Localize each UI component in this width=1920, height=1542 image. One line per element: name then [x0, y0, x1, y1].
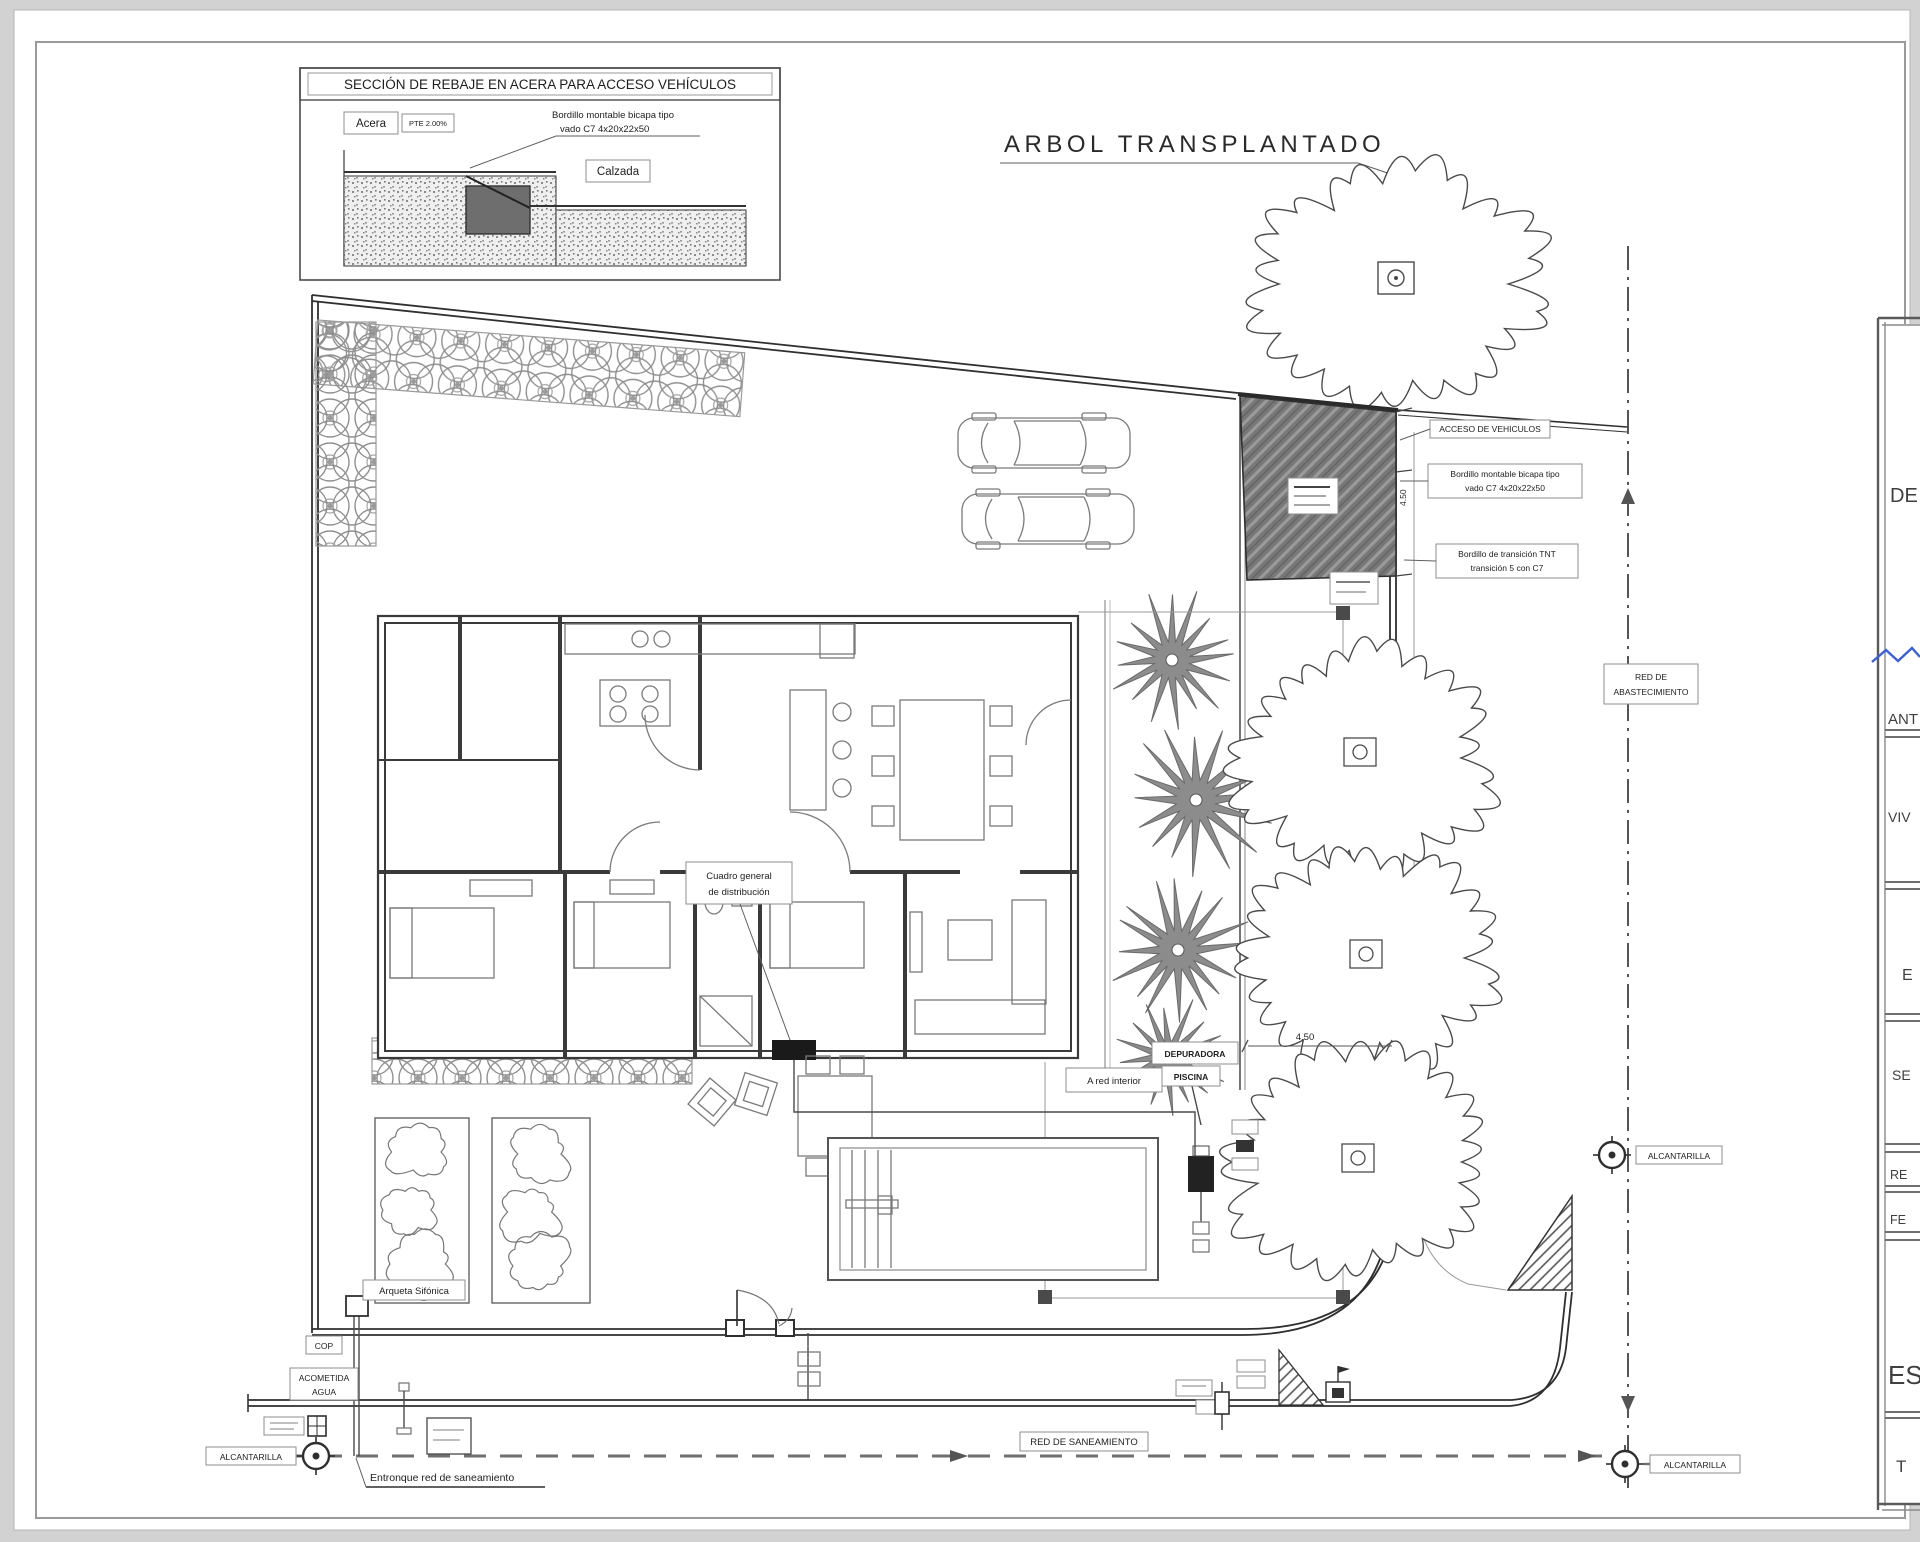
alcantarilla-mid-label: ALCANTARILLA: [1648, 1151, 1711, 1161]
driveway-note-box-2: [1330, 572, 1378, 604]
piscina-label: PISCINA: [1174, 1072, 1208, 1082]
titleblock-row-viv: VIV: [1888, 809, 1911, 825]
titleblock-row-ant: ANT: [1888, 711, 1918, 728]
a-red-interior-label: A red interior: [1087, 1076, 1141, 1087]
road-ground-hatch: [556, 210, 746, 266]
hedge-left: [316, 322, 376, 546]
alcantarilla-bottom-label: ALCANTARILLA: [1664, 1460, 1727, 1470]
titleblock-row-re: RE: [1890, 1168, 1907, 1182]
titleblock-row-e: E: [1902, 967, 1913, 984]
bordillo1-l1: Bordillo montable bicapa tipo: [1450, 469, 1559, 479]
planter-bed-1: [375, 1118, 469, 1303]
titleblock-row-t: T: [1896, 1457, 1906, 1476]
depuradora-label: DEPURADORA: [1165, 1049, 1226, 1059]
acceso-label: ACCESO DE VEHICULOS: [1439, 424, 1541, 434]
red-abastecimiento-l2: ABASTECIMIENTO: [1614, 687, 1689, 697]
red-abastecimiento-l1: RED DE: [1635, 672, 1667, 682]
curb-section-detail: SECCIÓN DE REBAJE EN ACERA PARA ACCESO V…: [300, 68, 780, 280]
trees-column: [1220, 637, 1502, 1281]
arqueta-sifonica-label: Arqueta Sifónica: [379, 1286, 449, 1297]
alcantarilla-left-label: ALCANTARILLA: [220, 1452, 283, 1462]
titleblock-row-se: SE: [1892, 1067, 1911, 1083]
red-saneamiento-label-group: RED DE SANEAMIENTO: [1020, 1432, 1148, 1451]
planter-bed-2: [492, 1118, 590, 1303]
title-block: DE ANT VIV E SE RE FE ES T: [1872, 318, 1920, 1510]
acometida-l2: AGUA: [312, 1387, 336, 1397]
entronque-label: Entronque red de saneamiento: [370, 1472, 514, 1484]
titleblock-row-es: ES: [1888, 1360, 1920, 1390]
drawing-sheet: SECCIÓN DE REBAJE EN ACERA PARA ACCESO V…: [0, 0, 1920, 1542]
pool: [828, 1138, 1158, 1280]
acometida-l1: ACOMETIDA: [299, 1373, 350, 1383]
red-saneamiento-label: RED DE SANEAMIENTO: [1030, 1437, 1138, 1448]
electrical-panel: [772, 1040, 816, 1060]
house-plan: [378, 616, 1078, 1060]
driveway-dim-label: 4.50: [1398, 489, 1408, 506]
bordillo2-l1: Bordillo de transición TNT: [1458, 549, 1556, 559]
detail-label-bordillo-1: Bordillo montable bicapa tipo: [552, 110, 674, 121]
cop-label: COP: [315, 1341, 334, 1351]
detail-label-pte: PTE 2.00%: [409, 119, 447, 128]
bordillo2-l2: transición 5 con C7: [1471, 563, 1544, 573]
arbol-title: ARBOL TRANSPLANTADO: [1004, 131, 1385, 158]
titleblock-row-fe: FE: [1890, 1213, 1906, 1227]
bordillo1-l2: vado C7 4x20x22x50: [1465, 483, 1545, 493]
pool-dim-label: 4.50: [1296, 1032, 1315, 1043]
cuadro-l2: de distribución: [708, 887, 769, 898]
detail-label-bordillo-2: vado C7 4x20x22x50: [560, 124, 649, 135]
cuadro-l1: Cuadro general: [706, 871, 772, 882]
detail-label-calzada: Calzada: [597, 166, 640, 178]
detail-title: SECCIÓN DE REBAJE EN ACERA PARA ACCESO V…: [344, 77, 736, 92]
detail-label-acera: Acera: [356, 118, 387, 130]
site-plan-svg: SECCIÓN DE REBAJE EN ACERA PARA ACCESO V…: [0, 0, 1920, 1542]
titleblock-row-de: DE: [1890, 485, 1918, 507]
driveway: 4.50: [1240, 396, 1412, 604]
curb-block: [466, 186, 530, 234]
